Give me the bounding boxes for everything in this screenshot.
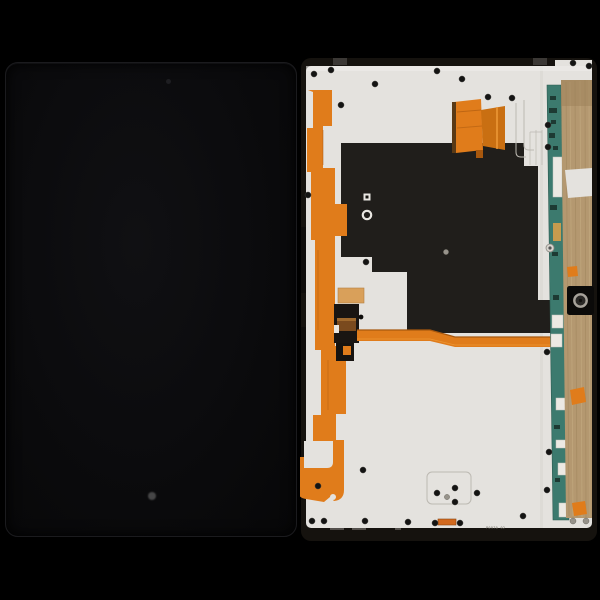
- etched-serial-label: P0970 02: [486, 526, 505, 530]
- screw: [432, 520, 438, 526]
- screw: [544, 487, 550, 493]
- screw: [457, 520, 463, 526]
- screw: [338, 102, 344, 108]
- screw: [363, 259, 369, 265]
- product-photo: P0970 02: [0, 0, 600, 600]
- screw: [452, 499, 458, 505]
- white-patch: [565, 168, 592, 198]
- screw: [459, 76, 465, 82]
- flex-foot-notch: [304, 441, 333, 468]
- flex-foot-cut: [330, 494, 336, 500]
- screw: [570, 60, 576, 66]
- screw: [362, 518, 368, 524]
- screw: [544, 349, 550, 355]
- screw: [485, 94, 491, 100]
- tape-bit-3: [572, 501, 587, 516]
- front-panel-reflection-dot: [148, 492, 156, 500]
- screw: [405, 519, 411, 525]
- screw: [434, 68, 440, 74]
- screw: [309, 518, 315, 524]
- screw: [545, 144, 551, 150]
- screw: [520, 513, 526, 519]
- rear-camera-module: [567, 286, 594, 315]
- tape-bit-1: [567, 266, 578, 277]
- screw: [315, 483, 321, 489]
- screw: [311, 71, 317, 77]
- screw: [474, 490, 480, 496]
- screw: [321, 518, 327, 524]
- tablet-front-panel: [5, 62, 297, 537]
- screw-light: [443, 249, 448, 254]
- screw: [452, 485, 458, 491]
- screw-light: [444, 494, 449, 499]
- screw: [372, 81, 378, 87]
- screw: [545, 122, 551, 128]
- tablet-back-assembly: P0970 02: [300, 56, 598, 544]
- flex-to-pcb-connector: [551, 334, 562, 347]
- screw: [360, 467, 366, 473]
- tape-bit-2: [570, 387, 586, 405]
- screw: [328, 67, 334, 73]
- screw: [305, 192, 311, 198]
- front-camera-icon: [166, 79, 171, 84]
- screw: [586, 63, 592, 69]
- screw: [509, 95, 515, 101]
- screw: [546, 449, 552, 455]
- screw: [434, 490, 440, 496]
- silver-screw-center: [548, 246, 551, 249]
